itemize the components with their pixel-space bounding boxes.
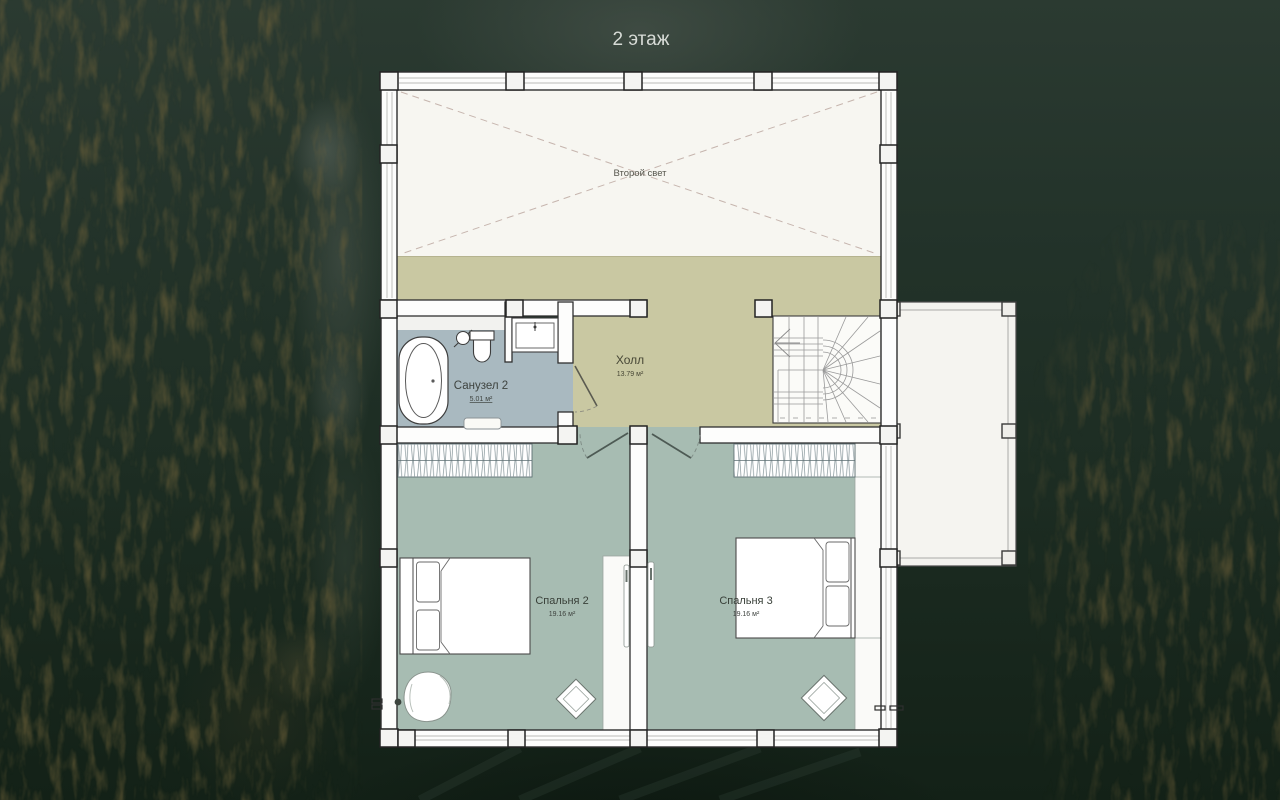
svg-text:Второй свет: Второй свет bbox=[613, 168, 667, 179]
svg-text:2 этаж: 2 этаж bbox=[613, 29, 670, 50]
svg-text:13.79 м²: 13.79 м² bbox=[617, 371, 644, 378]
svg-text:Спальня 2: Спальня 2 bbox=[535, 595, 588, 607]
svg-text:19.16 м²: 19.16 м² bbox=[549, 611, 576, 618]
svg-text:5.01 м²: 5.01 м² bbox=[470, 396, 493, 403]
svg-text:Спальня 3: Спальня 3 bbox=[719, 595, 772, 607]
svg-text:Санузел 2: Санузел 2 bbox=[454, 380, 508, 392]
svg-text:Холл: Холл bbox=[616, 353, 644, 367]
svg-text:19.16 м²: 19.16 м² bbox=[733, 611, 760, 618]
